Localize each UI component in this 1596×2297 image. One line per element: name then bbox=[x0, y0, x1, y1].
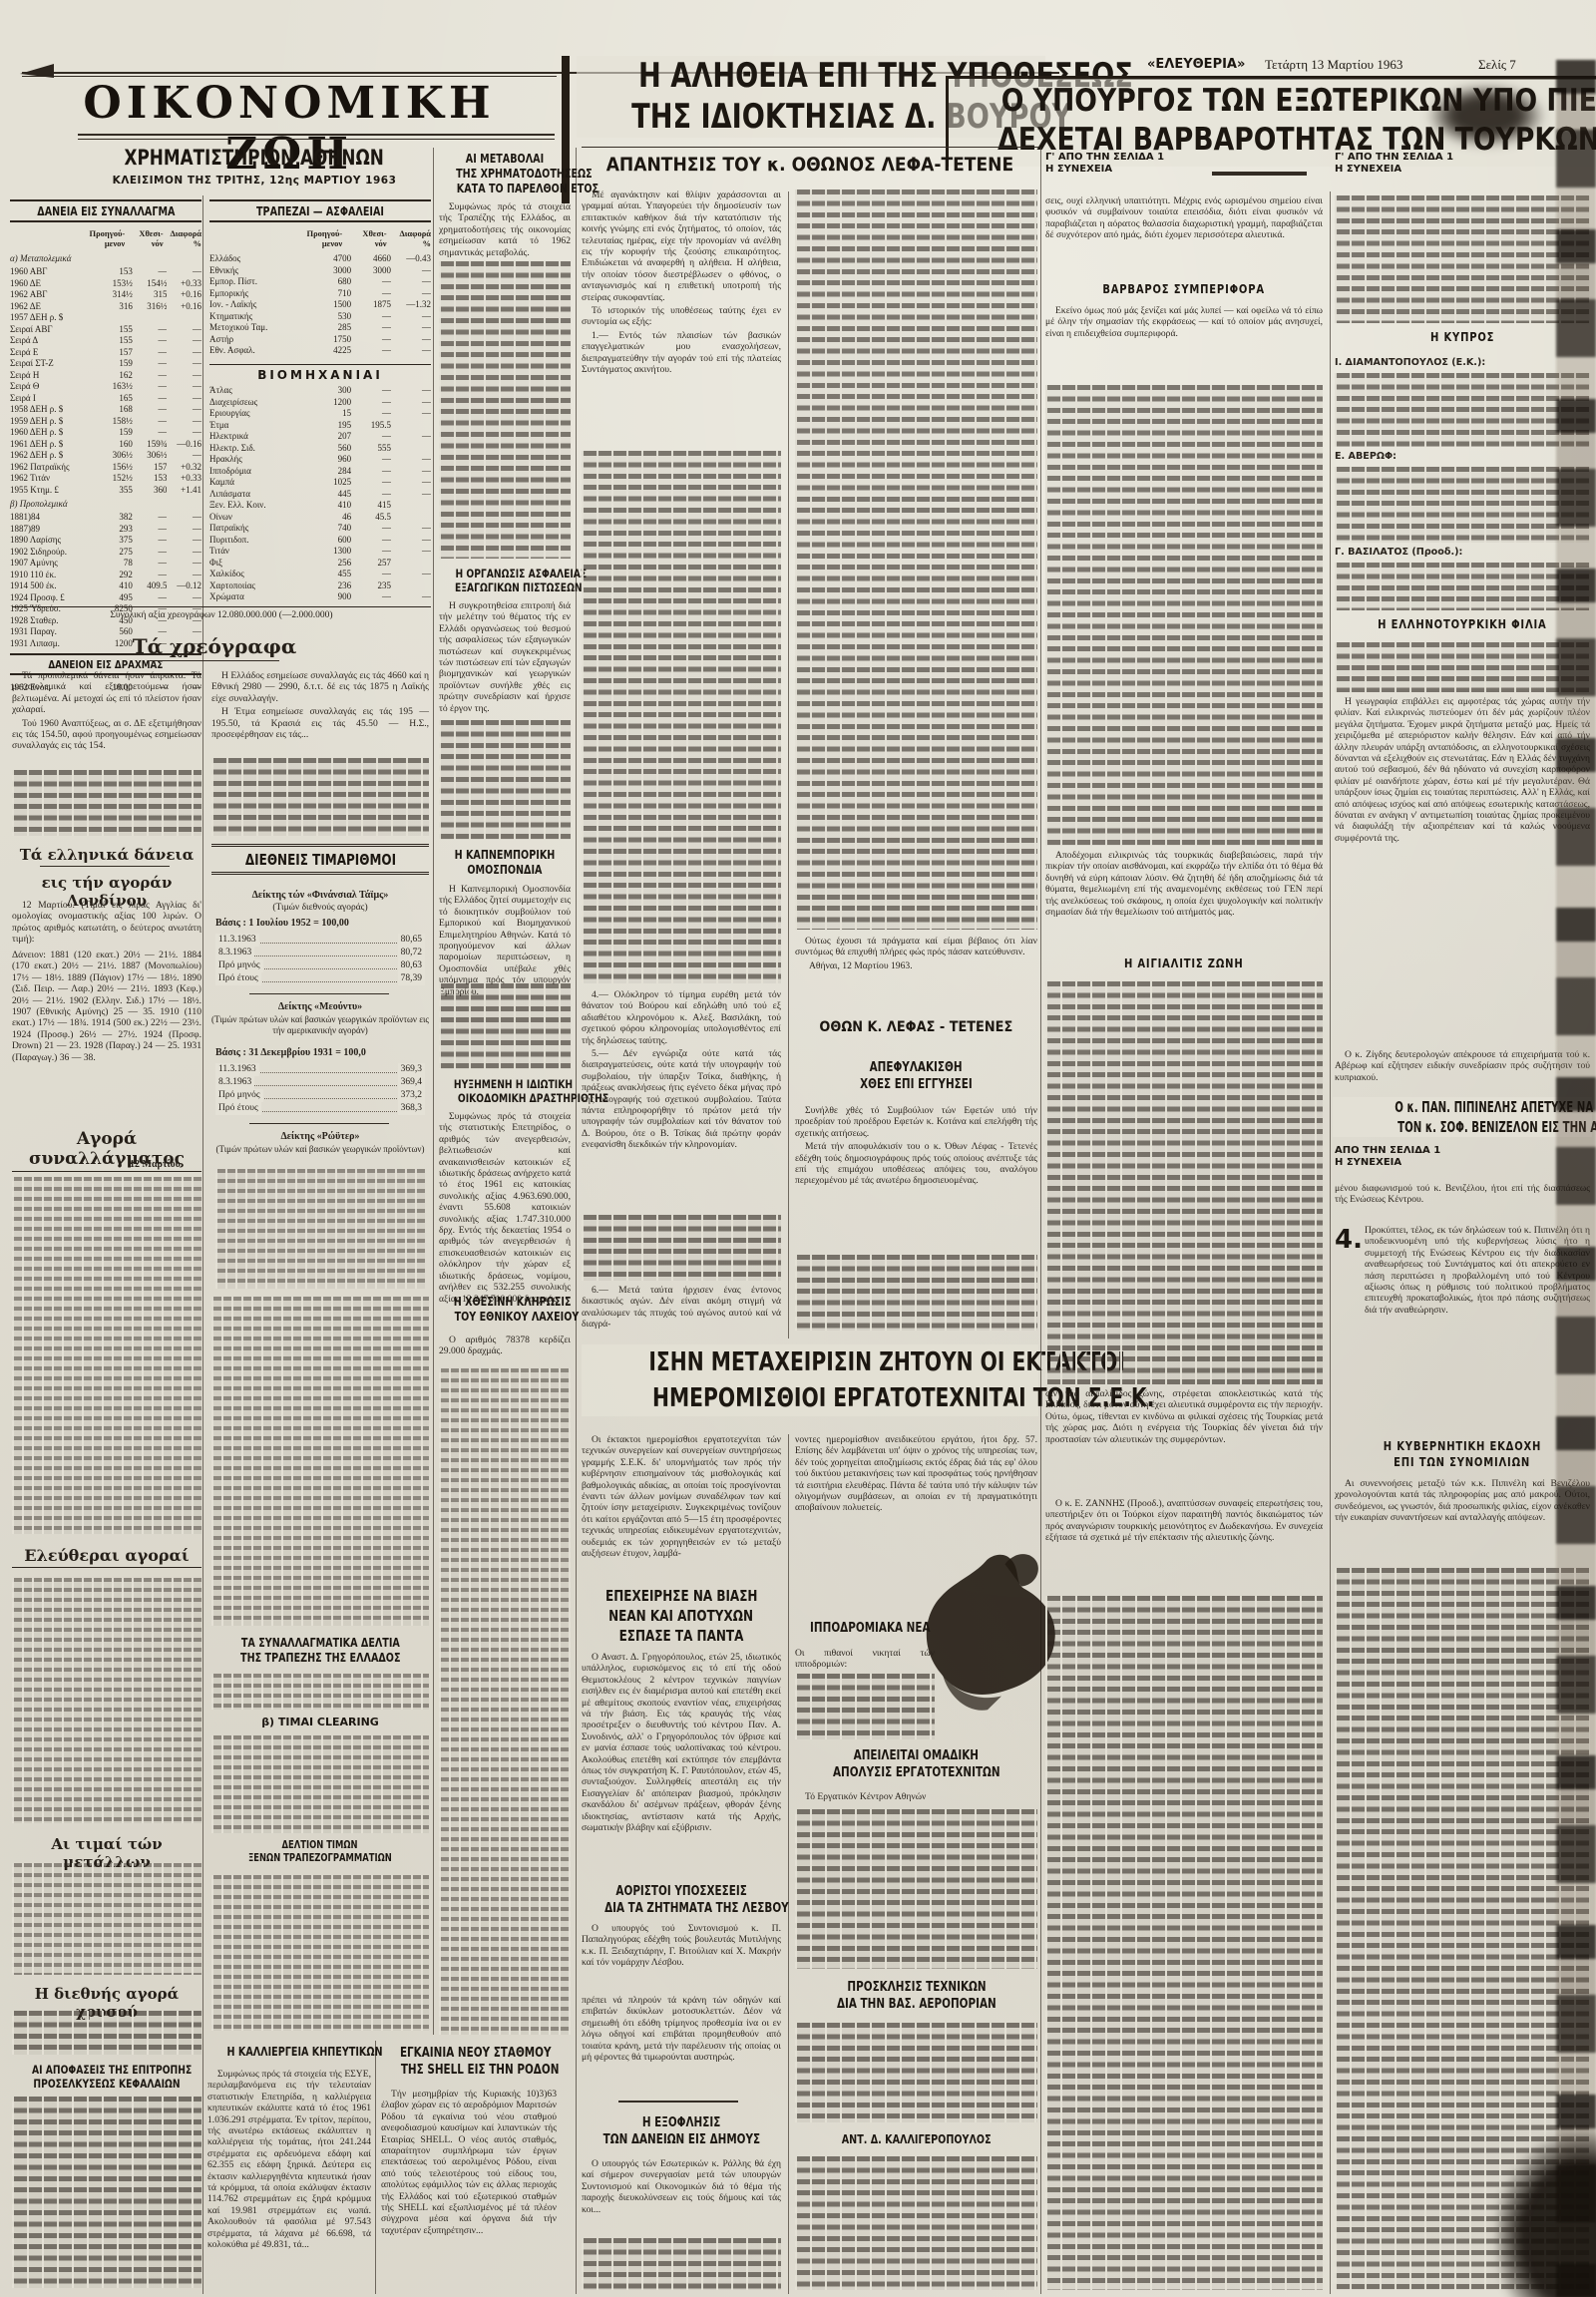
paragraph: Ούτως έχουσι τά πράγματα καί είμαι βέβαι… bbox=[795, 936, 1037, 958]
table-row: Πατραϊκής740—— bbox=[209, 523, 431, 535]
loans-table-postwar: 1960 ΑΒΓ153——1960 ΔΕ153½154½+0.331962 ΑΒ… bbox=[10, 266, 201, 496]
turks-subhead-1-text: ΒΑΡΒΑΡΟΣ ΣΥΜΠΕΡΙΦΟΡΑ bbox=[1103, 281, 1266, 296]
banks-table-title: ΤΡΑΠΕΖΑΙ — ΑΣΦΑΛΕΙΑΙ bbox=[209, 199, 431, 222]
table-cell: — bbox=[133, 592, 168, 604]
column-rule-4b bbox=[788, 1434, 789, 2294]
moody-index-name: Δείκτης «Μεούντυ» bbox=[211, 1001, 429, 1012]
table-cell: 292 bbox=[98, 570, 133, 581]
export-credit-title: Η ΟΡΓΑΝΩΣΙΣ ΑΣΦΑΛΕΙΑΣ ΕΞΑΓΩΓΙΚΩΝ ΠΙΣΤΩΣΕ… bbox=[439, 567, 571, 594]
table-cell: — bbox=[167, 381, 201, 393]
table-row: Εμπορ. Πίστ.680—— bbox=[209, 276, 431, 288]
pipinelis-numeral: 4. bbox=[1335, 1225, 1363, 1255]
table-row: Φιξ256257 bbox=[209, 558, 431, 570]
paragraph: 4.— Ολόκληρον τό τίμημα ευρέθη μετά τόν … bbox=[582, 989, 781, 1046]
lottery-lead: Ο αριθμός 78378 κερδίζει 29.000 δραχμάς. bbox=[439, 1335, 571, 1359]
paragraph: Αι συνεννοήσεις μεταξύ τών κ.κ. Πιπινέλη… bbox=[1335, 1478, 1590, 1524]
page-date: Τετάρτη 13 Μαρτίου 1963 bbox=[1265, 57, 1402, 73]
release-body: Συνήλθε χθές τό Συμβούλιον τών Εφετών υπ… bbox=[795, 1105, 1037, 1189]
table-cell: Εριουργίας bbox=[209, 408, 311, 420]
table-cell: Καμπά bbox=[209, 477, 311, 489]
table-row: 8.3.1963369,4 bbox=[215, 1076, 425, 1089]
table-cell: +0.32 bbox=[167, 462, 201, 474]
table-cell: 306½ bbox=[98, 450, 133, 462]
table-row: 1907 Αμύνης78—— bbox=[10, 558, 201, 570]
table-cell: +0.16 bbox=[167, 301, 201, 313]
export-credit-title-2: ΕΞΑΓΩΓΙΚΩΝ ΠΙΣΤΩΣΕΩΝ bbox=[455, 580, 583, 594]
table-cell: 560 bbox=[311, 443, 351, 455]
table-cell: 168 bbox=[98, 404, 133, 416]
unreadable-text-block bbox=[1335, 563, 1590, 610]
table-cell: Σειρά Η bbox=[10, 370, 98, 382]
kalligeropoulos-name-text: ΑΝΤ. Δ. ΚΑΛΛΙΓΕΡΟΠΟΥΛΟΣ bbox=[842, 2132, 992, 2146]
masthead-flourish bbox=[20, 64, 54, 78]
table-cell: 3000 bbox=[311, 265, 351, 277]
table-cell: 4700 bbox=[311, 253, 351, 265]
table-cell bbox=[167, 312, 201, 324]
table-cell: 155 bbox=[98, 335, 133, 347]
table-cell: 1300 bbox=[311, 546, 351, 558]
col-header-diff: Διαφορά % bbox=[387, 229, 431, 248]
ft-index-rows: 11.3.196380,658.3.196380,72Πρό μηνός80,6… bbox=[215, 934, 425, 985]
unreadable-text-block bbox=[582, 2238, 781, 2290]
table-cell: Σειρά Δ bbox=[10, 335, 98, 347]
table-cell: 306½ bbox=[133, 450, 168, 462]
continuation-marker-line1: Γ' ΑΠΟ ΤΗΝ ΣΕΛΙΔΑ 1 bbox=[1335, 152, 1454, 164]
govt-version-subhead-1: Η ΚΥΒΕΡΝΗΤΙΚΗ ΕΚΔΟΧΗ bbox=[1384, 1438, 1541, 1454]
table-row: 1910 110 έκ.292—— bbox=[10, 570, 201, 581]
unreadable-text-block bbox=[12, 2011, 201, 2055]
table-cell: — bbox=[133, 358, 168, 370]
table-cell: — bbox=[133, 416, 168, 428]
dismissal-title-2: ΑΠΟΛΥΣΙΣ ΕΡΓΑΤΟΤΕΧΝΙΤΩΝ bbox=[833, 1764, 1000, 1781]
section-divider-dash bbox=[618, 2101, 738, 2103]
vegetables-title-text: Η ΚΑΛΛΙΕΡΓΕΙΑ ΚΗΠΕΥΤΙΚΩΝ bbox=[227, 2045, 383, 2059]
table-cell: 154½ bbox=[133, 278, 168, 290]
table-cell: 3000 bbox=[351, 265, 391, 277]
turks-filia-subhead: Η ΕΛΛΗΝΟΤΟΥΡΚΙΚΗ ΦΙΛΙΑ bbox=[1335, 616, 1590, 631]
table-cell: 15 bbox=[311, 408, 351, 420]
masthead-bottom-rule-2 bbox=[78, 139, 555, 140]
table-row: 1962 ΔΕ316316½+0.16 bbox=[10, 301, 201, 313]
table-cell: — bbox=[351, 322, 391, 334]
capital-committee-title-1: ΑΙ ΑΠΟΦΑΣΕΙΣ ΤΗΣ ΕΠΙΤΡΟΠΗΣ bbox=[32, 2063, 192, 2077]
indices-title-text: ΔΙΕΘΝΕΙΣ ΤΙΜΑΡΙΘΜΟΙ bbox=[244, 851, 395, 869]
col-header-name bbox=[10, 229, 87, 248]
table-cell: 153 bbox=[133, 473, 168, 485]
release-title-1: ΑΠΕΦΥΛΑΚΙΣΘΗ bbox=[870, 1059, 963, 1076]
airforce-title: ΠΡΟΣΚΛΗΣΙΣ ΤΕΧΝΙΚΩΝ ΔΙΑ ΤΗΝ ΒΑΣ. ΑΕΡΟΠΟΡ… bbox=[795, 1979, 1037, 2013]
table-cell: 710 bbox=[311, 288, 351, 300]
table-cell: — bbox=[351, 569, 391, 580]
table-cell: 1025 bbox=[311, 477, 351, 489]
turks-headline-line1: Ο ΥΠΟΥΡΓΟΣ ΤΩΝ ΕΞΩΤΕΡΙΚΩΝ ΥΠΟ ΠΙΕΣΙΝ bbox=[1001, 81, 1596, 121]
table-row: Έτμα195195.5 bbox=[209, 420, 431, 432]
banknotes-subtitle-1: ΔΕΛΤΙΟΝ ΤΙΜΩΝ bbox=[282, 1839, 358, 1852]
table-cell: 156½ bbox=[98, 462, 133, 474]
table-cell: — bbox=[351, 546, 391, 558]
unreadable-number-block bbox=[12, 1578, 201, 1823]
table-row: Ελλάδος47004660—0.43 bbox=[209, 253, 431, 265]
table-cell: Εθνικής bbox=[209, 265, 311, 277]
table-row: 1914 500 έκ.410409.5—0.12 bbox=[10, 580, 201, 592]
col-header-yday: Χθεσι- νόν bbox=[342, 229, 386, 248]
table-cell: — bbox=[167, 358, 201, 370]
unreadable-text-block bbox=[795, 190, 1037, 930]
table-cell bbox=[391, 558, 431, 570]
table-cell: Σειραί ΣΤ-Ζ bbox=[10, 358, 98, 370]
col-header-name bbox=[209, 229, 298, 248]
table-row: Λιπάσματα445—— bbox=[209, 489, 431, 501]
table-row: 1962 ΔΕΗ ρ. $306½306½— bbox=[10, 450, 201, 462]
unreadable-number-block bbox=[12, 1177, 201, 1534]
table-cell: 1957 ΔΕΗ ρ. $ bbox=[10, 312, 98, 324]
ft-index-scope: (Τιμών διεθνούς αγοράς) bbox=[211, 903, 429, 913]
sek-body-col2: νοντες ημερομίσθιον ανειδικεύτου εργάτου… bbox=[795, 1434, 1037, 1516]
table-cell: 1881)84 bbox=[10, 512, 98, 524]
continuation-marker: ΑΠΟ ΤΗΝ ΣΕΛΙΔΑ 1 Η ΣΥΝΕΧΕΙΑ bbox=[1335, 1145, 1464, 1169]
tobacco-title-1: Η ΚΑΠΝΕΜΠΟΡΙΚΗ bbox=[455, 848, 556, 863]
indices-divider-1 bbox=[249, 993, 389, 994]
table-cell: 152½ bbox=[98, 473, 133, 485]
table-cell: 1914 500 έκ. bbox=[10, 580, 98, 592]
table-cell: 960 bbox=[311, 454, 351, 466]
unreadable-text-block bbox=[12, 770, 201, 836]
paragraph: Τό ιστορικόν τής υποθέσεως ταύτης έχει ε… bbox=[582, 305, 781, 328]
metabolai-title-2: ΤΗΣ ΧΡΗΜΑΤΟΔΟΤΗΣΕΩΣ bbox=[456, 167, 593, 182]
table-cell: Πατραϊκής bbox=[209, 523, 311, 535]
table-row: Ηρακλής960—— bbox=[209, 454, 431, 466]
turks-p7: Η γεωγραφία επιβάλλει εις αμφοτέρας τάς … bbox=[1335, 696, 1590, 846]
paragraph: Αποδέχομαι ειλικρινώς τάς τουρκικάς διαβ… bbox=[1045, 850, 1323, 918]
column-rule-5 bbox=[1040, 148, 1041, 2294]
table-cell: 316½ bbox=[133, 301, 168, 313]
table-cell: — bbox=[167, 427, 201, 439]
table-cell: 1902 Σιδηρούρ. bbox=[10, 547, 98, 559]
table-cell: — bbox=[391, 477, 431, 489]
table-cell: —0.43 bbox=[391, 253, 431, 265]
table-row: Τιτάν1300—— bbox=[209, 546, 431, 558]
loans-group-a-label: α) Μεταπολεμικά bbox=[10, 253, 201, 263]
table-cell: — bbox=[351, 408, 391, 420]
table-row: 1962 Τιτάν152½153+0.33 bbox=[10, 473, 201, 485]
table-row: 1962 Πατραϊκής156½157+0.32 bbox=[10, 462, 201, 474]
table-cell: — bbox=[391, 288, 431, 300]
table-cell: — bbox=[391, 345, 431, 357]
table-row: 1890 Λαρίσης375—— bbox=[10, 535, 201, 547]
table-cell: Χαλκίδος bbox=[209, 569, 311, 580]
continuation-marker-line1: ΑΠΟ ΤΗΝ ΣΕΛΙΔΑ 1 bbox=[1335, 1145, 1464, 1157]
sek-headline: ΙΣΗΝ ΜΕΤΑΧΕΙΡΙΣΙΝ ΖΗΤΟΥΝ ΟΙ ΕΚΤΑΚΤΟΙ ΗΜΕ… bbox=[582, 1344, 1038, 1416]
table-row: Αστήρ1750—— bbox=[209, 334, 431, 346]
table-cell: 1960 ΔΕΗ ρ. $ bbox=[10, 427, 98, 439]
speaker-lead-3: Γ. ΒΑΣΙΛΑΤΟΣ (Προοδ.): bbox=[1335, 547, 1590, 558]
table-cell: 256 bbox=[311, 558, 351, 570]
column-rule-3 bbox=[576, 148, 577, 2294]
table-cell: Διαχειρίσεως bbox=[209, 397, 311, 409]
housing-title: ΗΥΞΗΜΕΝΗ Η ΙΔΙΩΤΙΚΗ ΟΙΚΟΔΟΜΙΚΗ ΔΡΑΣΤΗΡΙΟ… bbox=[439, 1077, 571, 1105]
table-cell: 162 bbox=[98, 370, 133, 382]
table-cell: — bbox=[351, 334, 391, 346]
table-cell: Άτλας bbox=[209, 385, 311, 397]
table-cell: — bbox=[391, 466, 431, 478]
paragraph: Τά προπολεμικά δάνεια ήσαν άπρακτα. Τά μ… bbox=[12, 670, 201, 716]
table-cell: 455 bbox=[311, 569, 351, 580]
paragraph: 6.— Μετά ταύτα ήρχισεν ένας έντονος δικα… bbox=[582, 1285, 781, 1331]
rape-title-2: ΝΕΑΝ ΚΑΙ ΑΠΟΤΥΧΩΝ bbox=[609, 1606, 754, 1626]
table-cell: — bbox=[133, 370, 168, 382]
banks-table-title-text: ΤΡΑΠΕΖΑΙ — ΑΣΦΑΛΕΙΑΙ bbox=[256, 204, 384, 218]
table-cell: 159 bbox=[98, 358, 133, 370]
sek-body-col1: Οι έκτακτοι ημερομίσθιοι εργατοτεχνίται … bbox=[582, 1434, 781, 1561]
table-cell: 160 bbox=[98, 439, 133, 451]
table-cell: — bbox=[391, 276, 431, 288]
table-cell: +0.33 bbox=[167, 278, 201, 290]
table-row: Ηλεκτρ. Σιδ.560555 bbox=[209, 443, 431, 455]
loans-table-title-text: ΔΑΝΕΙΑ ΕΙΣ ΣΥΝΑΛΛΑΓΜΑ bbox=[37, 204, 175, 218]
pipinelis-headline: Ο κ. ΠΑΝ. ΠΙΠΙΝΕΛΗΣ ΑΠΕΤΥΧΕ ΝΑ ΠΑΡΑΣΥΡΗ … bbox=[1333, 1097, 1592, 1137]
table-cell: 1910 110 έκ. bbox=[10, 570, 98, 581]
table-cell: 159¾ bbox=[133, 439, 168, 451]
unreadable-text-block bbox=[1045, 981, 1323, 1384]
table-cell: 236 bbox=[311, 580, 351, 592]
london-body: Δάνειον: 1881 (120 εκατ.) 20½ — 21½. 188… bbox=[12, 950, 201, 1065]
municipal-loans-title: Η ΕΞΟΦΛΗΣΙΣ ΤΩΝ ΔΑΝΕΙΩΝ ΕΙΣ ΔΗΜΟΥΣ bbox=[582, 2114, 781, 2148]
table-cell: 445 bbox=[311, 489, 351, 501]
table-cell: — bbox=[351, 466, 391, 478]
moody-index-base: Βάσις : 31 Δεκεμβρίου 1931 = 100,0 bbox=[215, 1047, 425, 1058]
table-cell: — bbox=[133, 512, 168, 524]
table-cell: — bbox=[391, 334, 431, 346]
table-cell: — bbox=[133, 324, 168, 336]
paragraph: Τό Εργατικόν Κέντρον Αθηνών bbox=[795, 1791, 1037, 1802]
clearing-subtitle: β) ΤΙΜΑΙ CLEARING bbox=[211, 1716, 429, 1728]
kicker-top-rule bbox=[582, 147, 1038, 148]
table-cell: — bbox=[391, 431, 431, 443]
rape-body: Ο Αναστ. Δ. Γρηγορόπουλος, ετών 25, ιδιω… bbox=[582, 1652, 781, 1836]
table-cell: — bbox=[167, 404, 201, 416]
airforce-title-1: ΠΡΟΣΚΛΗΣΙΣ ΤΕΧΝΙΚΩΝ bbox=[847, 1979, 986, 1996]
industry-title: ΒΙΟΜΗΧΑΝΙΑΙ bbox=[209, 364, 431, 382]
table-cell: — bbox=[351, 288, 391, 300]
table-row: 11.3.1963369,3 bbox=[215, 1063, 425, 1076]
vegetables-body: Συμφώνως πρός τά στοιχεία τής ΕΣΥΕ, περι… bbox=[207, 2069, 371, 2253]
table-cell: 275 bbox=[98, 547, 133, 559]
table-row: Σειρά Ε157—— bbox=[10, 347, 201, 359]
turks-p5: Ο κ. Ε. ΖΑΝΝΗΣ (Προοδ.), αναπτύσσων συνα… bbox=[1045, 1498, 1323, 1546]
table-cell: — bbox=[351, 477, 391, 489]
table-cell: — bbox=[167, 335, 201, 347]
pipinelis-p2: Προκύπτει, τέλος, εκ τών δηλώσεων τού κ.… bbox=[1365, 1225, 1590, 1318]
table-cell: — bbox=[351, 276, 391, 288]
paragraph: Ο υπουργός τών Εσωτερικών κ. Ράλλης θά έ… bbox=[582, 2158, 781, 2215]
banks-table-headers: Προηγού- μενον Χθεσι- νόν Διαφορά % bbox=[209, 229, 431, 248]
hippodrome-title-text: ΙΠΠΟΔΡΟΜΙΑΚΑ ΝΕΑ bbox=[810, 1621, 930, 1637]
metabolai-title-1: ΑΙ ΜΕΤΑΒΟΛΑΙ bbox=[466, 152, 544, 167]
table-cell: — bbox=[167, 347, 201, 359]
table-cell: 1961 ΔΕΗ ρ. $ bbox=[10, 439, 98, 451]
dismissal-title-1: ΑΠΕΙΛΕΙΤΑΙ ΟΜΑΔΙΚΗ bbox=[854, 1747, 979, 1764]
table-cell: Ηρακλής bbox=[209, 454, 311, 466]
continuation-marker-line2: Η ΣΥΝΕΧΕΙΑ bbox=[1335, 164, 1454, 176]
table-cell: — bbox=[351, 591, 391, 603]
ft-index-name: Δείκτης τών «Φινάνσιαλ Τάϊμς» bbox=[211, 890, 429, 901]
table-cell: 157 bbox=[98, 347, 133, 359]
turks-filia-subhead-text: Η ΕΛΛΗΝΟΤΟΥΡΚΙΚΗ ΦΙΛΙΑ bbox=[1378, 616, 1546, 631]
unreadable-text-block bbox=[795, 1255, 1037, 1331]
export-credit-title-1: Η ΟΡΓΑΝΩΣΙΣ ΑΣΦΑΛΕΙΑΣ bbox=[455, 567, 587, 580]
lesbos-title-1: ΑΟΡΙΣΤΟΙ ΥΠΟΣΧΕΣΕΙΣ bbox=[615, 1883, 746, 1900]
turks-subhead-2: Η ΑΙΓΙΑΛΙΤΙΣ ΖΩΝΗ bbox=[1045, 956, 1323, 970]
table-cell: Πρό έτους bbox=[215, 972, 261, 985]
turks-p1: σεις, ουχί ελληνική υπαιτιότητι. Μέχρις … bbox=[1045, 195, 1323, 243]
hippodrome-lead: Οι πιθανοί νικηταί τών ιπποδρομιών: bbox=[795, 1648, 935, 1673]
chreografa-underline bbox=[150, 660, 279, 661]
table-cell: 45.5 bbox=[351, 512, 391, 524]
metabolai-title: ΑΙ ΜΕΤΑΒΟΛΑΙ ΤΗΣ ΧΡΗΜΑΤΟΔΟΤΗΣΕΩΣ ΚΑΤΑ ΤΟ… bbox=[439, 152, 571, 196]
fx-market-date: 12 Μαρτίου bbox=[130, 1159, 181, 1170]
table-row: 1958 ΔΕΗ ρ. $168—— bbox=[10, 404, 201, 416]
table-cell: 153½ bbox=[98, 278, 133, 290]
table-cell: Πρό έτους bbox=[215, 1102, 261, 1115]
table-cell: 46 bbox=[311, 512, 351, 524]
table-cell: 80,72 bbox=[398, 947, 425, 959]
bank-bulletins-title-2: ΤΗΣ ΤΡΑΠΕΖΗΣ ΤΗΣ ΕΛΛΑΔΟΣ bbox=[240, 1651, 400, 1666]
table-cell: — bbox=[133, 558, 168, 570]
table-row: 1924 Προσφ. £495—— bbox=[10, 592, 201, 604]
table-cell bbox=[391, 420, 431, 432]
table-cell bbox=[391, 580, 431, 592]
table-cell: 4225 bbox=[311, 345, 351, 357]
turks-headline-box: Ο ΥΠΟΥΡΓΟΣ ΤΩΝ ΕΞΩΤΕΡΙΚΩΝ ΥΠΟ ΠΙΕΣΙΝ ΔΕΧ… bbox=[946, 76, 1596, 167]
london-title-1: Τά ελληνικά δάνεια bbox=[12, 846, 201, 864]
table-cell: — bbox=[351, 385, 391, 397]
table-cell: 207 bbox=[311, 431, 351, 443]
turks-p3: Αποδέχομαι ειλικρινώς τάς τουρκικάς διαβ… bbox=[1045, 850, 1323, 920]
lottery-title-1: Η ΧΘΕΣΙΝΗ ΚΛΗΡΩΣΙΣ bbox=[454, 1295, 572, 1310]
continuation-marker-line1: Γ' ΑΠΟ ΤΗΝ ΣΕΛΙΔΑ 1 bbox=[1045, 152, 1165, 164]
capital-committee-title-2: ΠΡΟΣΕΛΚΥΣΕΩΣ ΚΕΦΑΛΑΙΩΝ bbox=[33, 2077, 180, 2091]
table-cell: 1960 ΑΒΓ bbox=[10, 266, 98, 278]
masthead-top-rule-2 bbox=[22, 76, 557, 77]
table-cell: — bbox=[167, 558, 201, 570]
table-cell: — bbox=[133, 524, 168, 536]
free-markets-title: Ελεύθεραι αγοραί bbox=[12, 1546, 201, 1568]
col-header-diff: Διαφορά % bbox=[164, 229, 201, 248]
kalligeropoulos-name: ΑΝΤ. Δ. ΚΑΛΛΙΓΕΡΟΠΟΥΛΟΣ bbox=[795, 2132, 1037, 2146]
table-cell: —0.12 bbox=[167, 580, 201, 592]
chreografa-text-right: Η Ελλάδος εσημείωσε συναλλαγάς εις τάς 4… bbox=[211, 670, 429, 742]
paragraph: Ο κ. Ε. ΖΑΝΝΗΣ (Προοδ.), αναπτύσσων συνα… bbox=[1045, 1498, 1323, 1544]
column-rule-6 bbox=[1330, 191, 1331, 2294]
unreadable-text-block bbox=[12, 2097, 201, 2288]
table-cell: +0.33 bbox=[167, 473, 201, 485]
lesbos-body: Ο υπουργός τού Συντονισμού κ. Π. Παπαληγ… bbox=[582, 1923, 781, 1971]
column-rule-2b bbox=[375, 2041, 376, 2294]
table-cell: — bbox=[167, 512, 201, 524]
table-cell: — bbox=[391, 408, 431, 420]
table-row: Ξεν. Ελλ. Κοιν.410415 bbox=[209, 500, 431, 512]
table-row: Κτηματικής530—— bbox=[209, 311, 431, 323]
table-row: Σειρά Η162—— bbox=[10, 370, 201, 382]
table-cell: 1500 bbox=[311, 299, 351, 311]
column-rule-4 bbox=[788, 191, 789, 1339]
table-cell: Ιπποδρόμια bbox=[209, 466, 311, 478]
moody-index-rows: 11.3.1963369,38.3.1963369,4Πρό μηνός373,… bbox=[215, 1063, 425, 1115]
table-cell: — bbox=[167, 592, 201, 604]
export-credit-body: Η συγκροτηθείσα επιτροπή διά τήν μελέτην… bbox=[439, 600, 571, 716]
tobacco-title-2: ΟΜΟΣΠΟΝΔΙΑ bbox=[467, 863, 542, 878]
unreadable-text-block bbox=[1045, 385, 1323, 846]
unreadable-text-block bbox=[1335, 1568, 1590, 2290]
table-cell: Χρώματα bbox=[209, 591, 311, 603]
unreadable-number-block bbox=[211, 1297, 429, 1626]
table-cell: — bbox=[391, 385, 431, 397]
table-cell: — bbox=[167, 266, 201, 278]
table-cell: 373,2 bbox=[398, 1089, 425, 1102]
table-cell: 555 bbox=[351, 443, 391, 455]
unreadable-text-block bbox=[795, 2156, 1037, 2290]
pipinelis-headline-line2: ΤΟΝ κ. ΣΟΦ. ΒΕΝΙΖΕΛΟΝ ΕΙΣ ΤΗΝ ΑΝΑΘΕΩΡΗΣΙ… bbox=[1397, 1117, 1596, 1137]
table-cell: 300 bbox=[311, 385, 351, 397]
table-cell: 409.5 bbox=[133, 580, 168, 592]
municipal-loans-body: Ο υπουργός τών Εσωτερικών κ. Ράλλης θά έ… bbox=[582, 2158, 781, 2217]
continuation-marker: Γ' ΑΠΟ ΤΗΝ ΣΕΛΙΔΑ 1 Η ΣΥΝΕΧΕΙΑ bbox=[1335, 152, 1454, 176]
table-cell: 415 bbox=[351, 500, 391, 512]
unreadable-text-block bbox=[1335, 467, 1590, 543]
table-cell: 1200 bbox=[311, 397, 351, 409]
paragraph: Συμφώνως πρός τά στοιχεία τής Τραπέζης τ… bbox=[439, 201, 571, 258]
pipinelis-p1: μένου διαφωνισμού τού κ. Βενιζέλου, ήτοι… bbox=[1335, 1183, 1590, 1208]
table-cell: 80,63 bbox=[398, 959, 425, 972]
table-cell: Λιπάσματα bbox=[209, 489, 311, 501]
unreadable-text-block bbox=[795, 1809, 1037, 1969]
table-cell: 257 bbox=[351, 558, 391, 570]
paragraph: σιν τής αιγιαλίτιδος ζώνης, στρέφεται απ… bbox=[1045, 1388, 1323, 1445]
unreadable-text-block bbox=[1335, 195, 1590, 323]
table-row: 8.3.196380,72 bbox=[215, 947, 425, 959]
govt-version-body: Αι συνεννοήσεις μεταξύ τών κ.κ. Πιπινέλη… bbox=[1335, 1478, 1590, 1526]
lesbos-title: ΑΟΡΙΣΤΟΙ ΥΠΟΣΧΕΣΕΙΣ ΔΙΑ ΤΑ ΖΗΤΗΜΑΤΑ ΤΗΣ … bbox=[582, 1883, 781, 1917]
table-cell: — bbox=[391, 489, 431, 501]
table-cell: — bbox=[133, 535, 168, 547]
table-cell bbox=[133, 312, 168, 324]
unreadable-text-block bbox=[1045, 1596, 1323, 2290]
table-cell: — bbox=[351, 311, 391, 323]
table-row: 1960 ΔΕΗ ρ. $159—— bbox=[10, 427, 201, 439]
london-intro: 12 Μαρτίου. (Τιμαί εις λίρας Αγγλίας δι'… bbox=[12, 900, 201, 948]
column-rule-2 bbox=[433, 148, 434, 2035]
table-cell: Εμπορικής bbox=[209, 288, 311, 300]
vourou-col2-close: Ούτως έχουσι τά πράγματα καί είμαι βέβαι… bbox=[795, 936, 1037, 973]
table-cell: — bbox=[167, 570, 201, 581]
vourou-col1-top: Μέ αγανάκτησιν καί θλίψιν χαράσσονται αι… bbox=[582, 190, 781, 378]
bank-bulletins-title: ΤΑ ΣΥΝΑΛΛΑΓΜΑΤΙΚΑ ΔΕΛΤΙΑ ΤΗΣ ΤΡΑΠΕΖΗΣ ΤΗ… bbox=[211, 1636, 429, 1666]
exchange-closing-date: ΚΛΕΙΣΙΜΟΝ ΤΗΣ ΤΡΙΤΗΣ, 12ης ΜΑΡΤΙΟΥ 1963 bbox=[70, 175, 439, 187]
table-cell: Πρό μηνός bbox=[215, 959, 263, 972]
table-row: Σειρά Δ155—— bbox=[10, 335, 201, 347]
table-cell: 530 bbox=[311, 311, 351, 323]
table-cell: — bbox=[167, 524, 201, 536]
table-cell: Σειραί ΑΒΓ bbox=[10, 324, 98, 336]
unreadable-number-block bbox=[12, 1863, 201, 1975]
table-cell: — bbox=[391, 591, 431, 603]
reuter-index-name: Δείκτης «Ρώϋτερ» bbox=[211, 1131, 429, 1142]
paragraph: Ο κ. Ζίγδης δευτερολογών απέκρουσε τά επ… bbox=[1335, 1049, 1590, 1083]
table-cell: — bbox=[351, 454, 391, 466]
table-cell: — bbox=[167, 324, 201, 336]
banks-table-rows: Ελλάδος47004660—0.43Εθνικής30003000—Εμπο… bbox=[209, 253, 431, 357]
housing-body: Συμφώνως πρός τά στοιχεία τής στατιστική… bbox=[439, 1111, 571, 1307]
